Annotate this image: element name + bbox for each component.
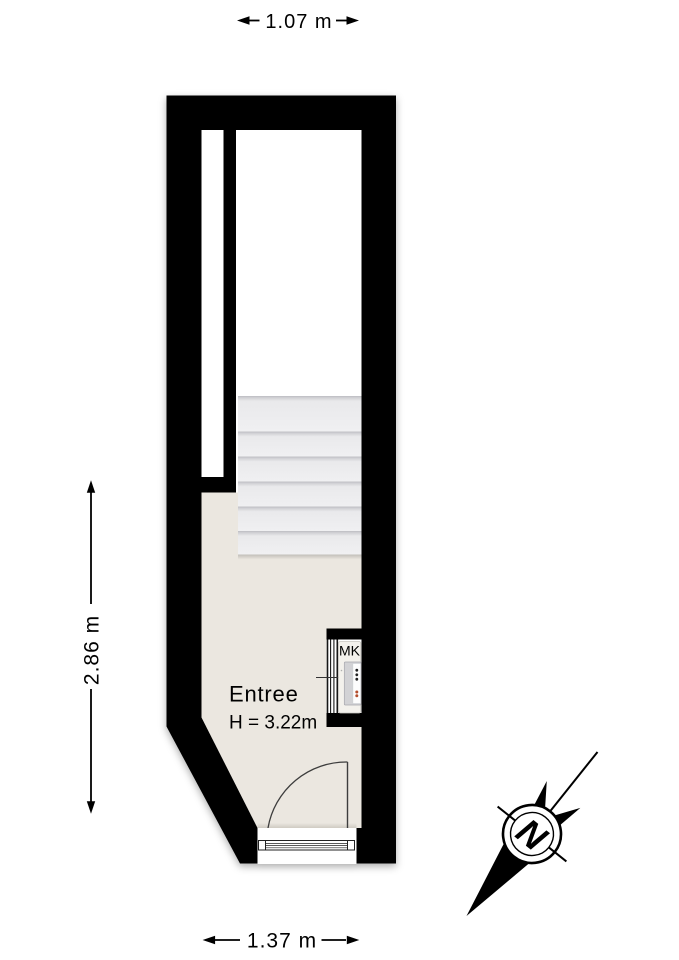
svg-text:H = 3.22m: H = 3.22m: [229, 713, 317, 734]
svg-text:1.07 m: 1.07 m: [265, 11, 332, 33]
svg-text:Entree: Entree: [229, 682, 299, 707]
svg-text:MK: MK: [339, 643, 361, 659]
svg-text:2.86 m: 2.86 m: [81, 615, 104, 685]
svg-text:1.37 m: 1.37 m: [247, 930, 317, 953]
